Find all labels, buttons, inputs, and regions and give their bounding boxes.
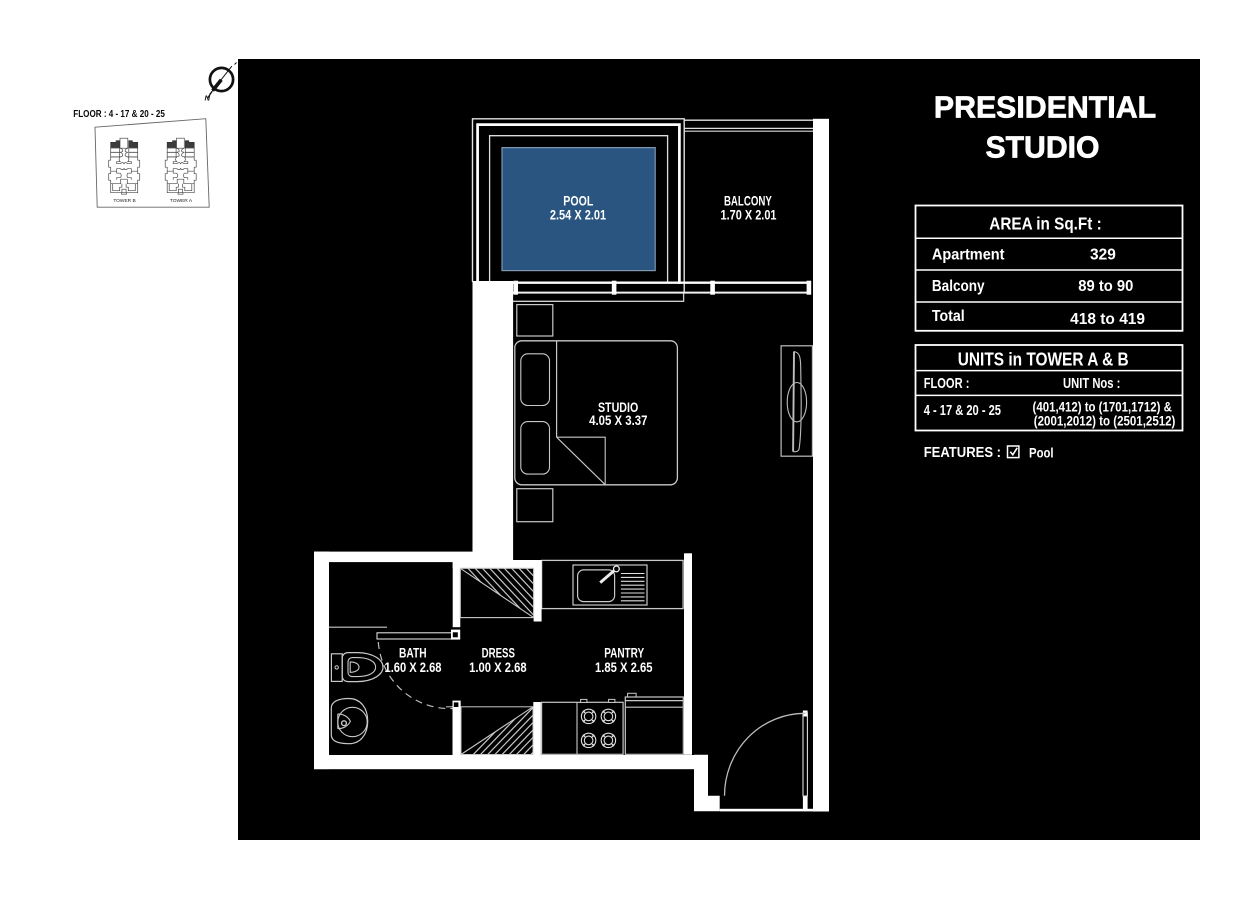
- svg-text:Apartment: Apartment: [932, 247, 1005, 264]
- svg-text:STUDIO: STUDIO: [985, 131, 1099, 164]
- svg-text:UNIT Nos :: UNIT Nos :: [1063, 375, 1120, 392]
- svg-text:PRESIDENTIAL: PRESIDENTIAL: [934, 92, 1156, 125]
- svg-text:FEATURES :: FEATURES :: [924, 444, 1001, 461]
- svg-text:2.54 X 2.01: 2.54 X 2.01: [550, 207, 607, 222]
- svg-text:FLOOR : 4 - 17 & 20 - 25: FLOOR : 4 - 17 & 20 - 25: [73, 109, 165, 120]
- svg-text:POOL: POOL: [563, 194, 593, 209]
- svg-text:FLOOR :: FLOOR :: [924, 375, 970, 392]
- svg-text:4 - 17 & 20 - 25: 4 - 17 & 20 - 25: [924, 403, 1001, 419]
- svg-text:1.60 X 2.68: 1.60 X 2.68: [385, 660, 442, 675]
- svg-text:DRESS: DRESS: [482, 646, 515, 661]
- svg-text:AREA in Sq.Ft :: AREA in Sq.Ft :: [989, 214, 1101, 234]
- svg-text:N: N: [205, 94, 211, 103]
- svg-text:(2001,2012) to (2501,2512): (2001,2012) to (2501,2512): [1034, 413, 1176, 428]
- svg-text:329: 329: [1090, 247, 1116, 264]
- svg-text:PANTRY: PANTRY: [604, 646, 644, 661]
- svg-text:4.05 X 3.37: 4.05 X 3.37: [589, 413, 647, 428]
- svg-text:1.85 X 2.65: 1.85 X 2.65: [595, 660, 653, 675]
- svg-text:BALCONY: BALCONY: [724, 194, 772, 209]
- svg-text:(401,412) to (1701,1712) &: (401,412) to (1701,1712) &: [1033, 399, 1172, 414]
- svg-text:Balcony: Balcony: [932, 278, 985, 295]
- svg-text:418 to 419: 418 to 419: [1070, 311, 1145, 328]
- svg-text:TOWER A: TOWER A: [170, 198, 193, 203]
- svg-text:Pool: Pool: [1029, 445, 1054, 460]
- svg-text:Total: Total: [932, 308, 965, 325]
- svg-text:UNITS in TOWER A & B: UNITS in TOWER A & B: [958, 350, 1129, 370]
- svg-text:BATH: BATH: [399, 646, 427, 661]
- svg-text:TOWER B: TOWER B: [113, 198, 135, 203]
- svg-text:89 to 90: 89 to 90: [1078, 278, 1133, 295]
- svg-text:1.70 X 2.01: 1.70 X 2.01: [721, 207, 777, 222]
- svg-text:1.00 X 2.68: 1.00 X 2.68: [469, 660, 527, 675]
